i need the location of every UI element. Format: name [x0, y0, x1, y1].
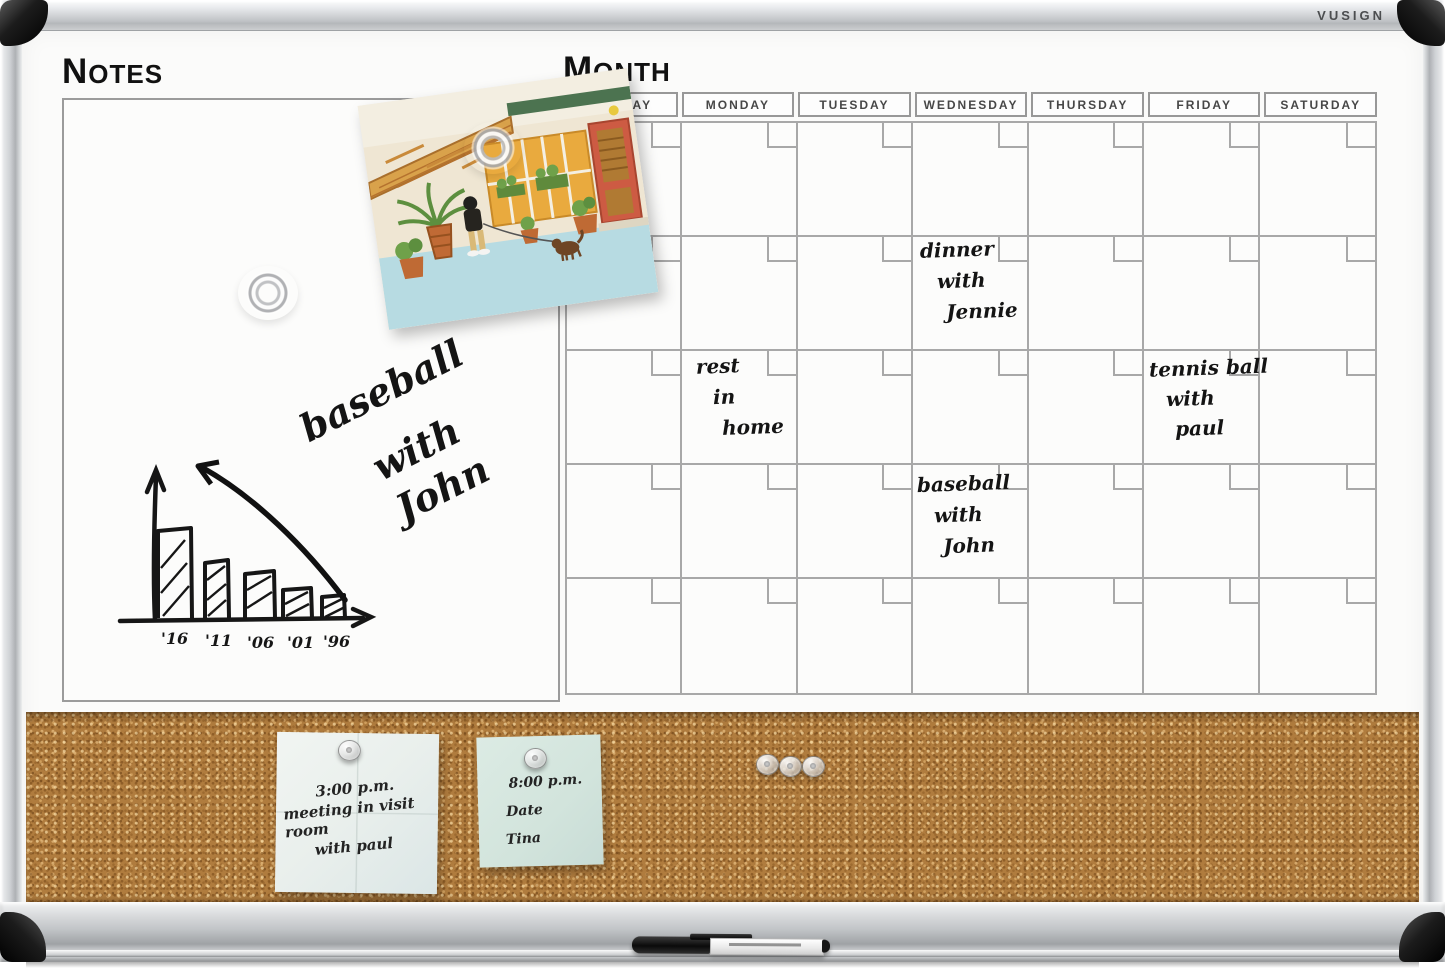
- push-pin-loose-1: [756, 754, 779, 775]
- day-header-row: SUNDAY MONDAY TUESDAY WEDNESDAY THURSDAY…: [565, 92, 1377, 117]
- calendar-cell: [1144, 465, 1259, 579]
- calendar-cell: [1260, 579, 1375, 693]
- calendar-cell: [1260, 123, 1375, 237]
- calendar-cell: [682, 465, 797, 579]
- calendar-cell: [682, 237, 797, 351]
- calendar-cell: [1260, 465, 1375, 579]
- sticky-note-blue-text: 8:00 p.m. Date Tina: [476, 770, 604, 849]
- calendar-cell: [567, 351, 682, 465]
- push-pin-on-white-note: [338, 740, 361, 761]
- sticky-note-white-text: 3:00 p.m. meeting in visit room with pau…: [273, 772, 441, 862]
- cork-board: [26, 712, 1419, 902]
- entry-line: with: [917, 497, 1038, 532]
- svg-text:'16: '16: [161, 629, 188, 648]
- calendar-cell: [1029, 123, 1144, 237]
- brand-logo: VUSIGN: [1317, 8, 1385, 23]
- postcard: [358, 68, 659, 330]
- svg-text:'01: '01: [287, 633, 314, 652]
- entry-line: John: [919, 528, 1040, 563]
- day-header-wednesday: WEDNESDAY: [915, 92, 1028, 117]
- push-pin-loose-3: [802, 756, 825, 777]
- svg-text:'96: '96: [323, 632, 350, 651]
- entry-line: in: [696, 379, 797, 413]
- entry-line: paul: [1151, 409, 1312, 445]
- calendar-cell: [1144, 237, 1259, 351]
- day-header-saturday: SATURDAY: [1264, 92, 1377, 117]
- calendar-cell: [798, 237, 913, 351]
- calendar-cell: [913, 123, 1028, 237]
- day-header-thursday: THURSDAY: [1031, 92, 1144, 117]
- push-pin-on-blue-note: [524, 748, 547, 769]
- board-drop-shadow: [26, 962, 1419, 968]
- svg-text:'11: '11: [205, 631, 232, 650]
- sketch-bar-chart: '16 '11 '06 '01 '96: [95, 428, 395, 663]
- calendar-entry-dinner: dinner with Jennie: [919, 232, 1032, 329]
- dry-erase-marker: [632, 935, 830, 956]
- day-header-friday: FRIDAY: [1148, 92, 1261, 117]
- calendar-cell: [1260, 237, 1375, 351]
- day-header-tuesday: TUESDAY: [798, 92, 911, 117]
- calendar-cell: [913, 351, 1028, 465]
- calendar-cell: [798, 579, 913, 693]
- calendar-cell: [798, 351, 913, 465]
- marker-end: [822, 940, 830, 953]
- calendar-cell: [798, 465, 913, 579]
- chart-bar-hatching: [161, 540, 343, 617]
- calendar-cell: [1029, 579, 1144, 693]
- calendar-cell: [682, 579, 797, 693]
- combination-board-photo: NOTES '16 '11 '06 '01: [0, 0, 1445, 968]
- entry-line: dinner: [919, 232, 1030, 267]
- day-header-monday: MONDAY: [682, 92, 795, 117]
- calendar-cell: [913, 579, 1028, 693]
- calendar-cell: [1029, 351, 1144, 465]
- frame-rail-left: [0, 0, 22, 962]
- entry-line: with: [920, 263, 1031, 298]
- ring-magnet-on-whiteboard: [238, 266, 298, 320]
- frame-rail-top: [0, 0, 1445, 31]
- calendar-cell: [1029, 237, 1144, 351]
- calendar-entry-baseball: baseball with John: [916, 466, 1039, 563]
- push-pin-loose-2: [779, 756, 802, 777]
- calendar-cell: [1144, 579, 1259, 693]
- calendar-entry-tennis: tennis ball with paul: [1148, 349, 1311, 445]
- entry-line: Jennie: [922, 294, 1033, 329]
- calendar-cell: [567, 465, 682, 579]
- entry-line: rest: [695, 348, 796, 382]
- calendar-cell: [682, 123, 797, 237]
- marker-barrel: [710, 938, 824, 956]
- notes-title: NOTES: [62, 52, 163, 92]
- entry-line: home: [698, 410, 799, 444]
- svg-text:'06: '06: [247, 633, 274, 652]
- calendar-cell: [1029, 465, 1144, 579]
- postcard-illustration: [358, 68, 659, 330]
- calendar-entry-rest: rest in home: [695, 348, 798, 444]
- frame-rail-right: [1423, 0, 1445, 962]
- calendar-cell: [567, 579, 682, 693]
- chart-x-labels: '16 '11 '06 '01 '96: [161, 629, 350, 652]
- entry-line: baseball: [916, 466, 1037, 501]
- calendar-cell: [798, 123, 913, 237]
- marker-print: [729, 943, 801, 947]
- ring-magnet-on-postcard: [464, 122, 522, 174]
- calendar-cell: [1144, 123, 1259, 237]
